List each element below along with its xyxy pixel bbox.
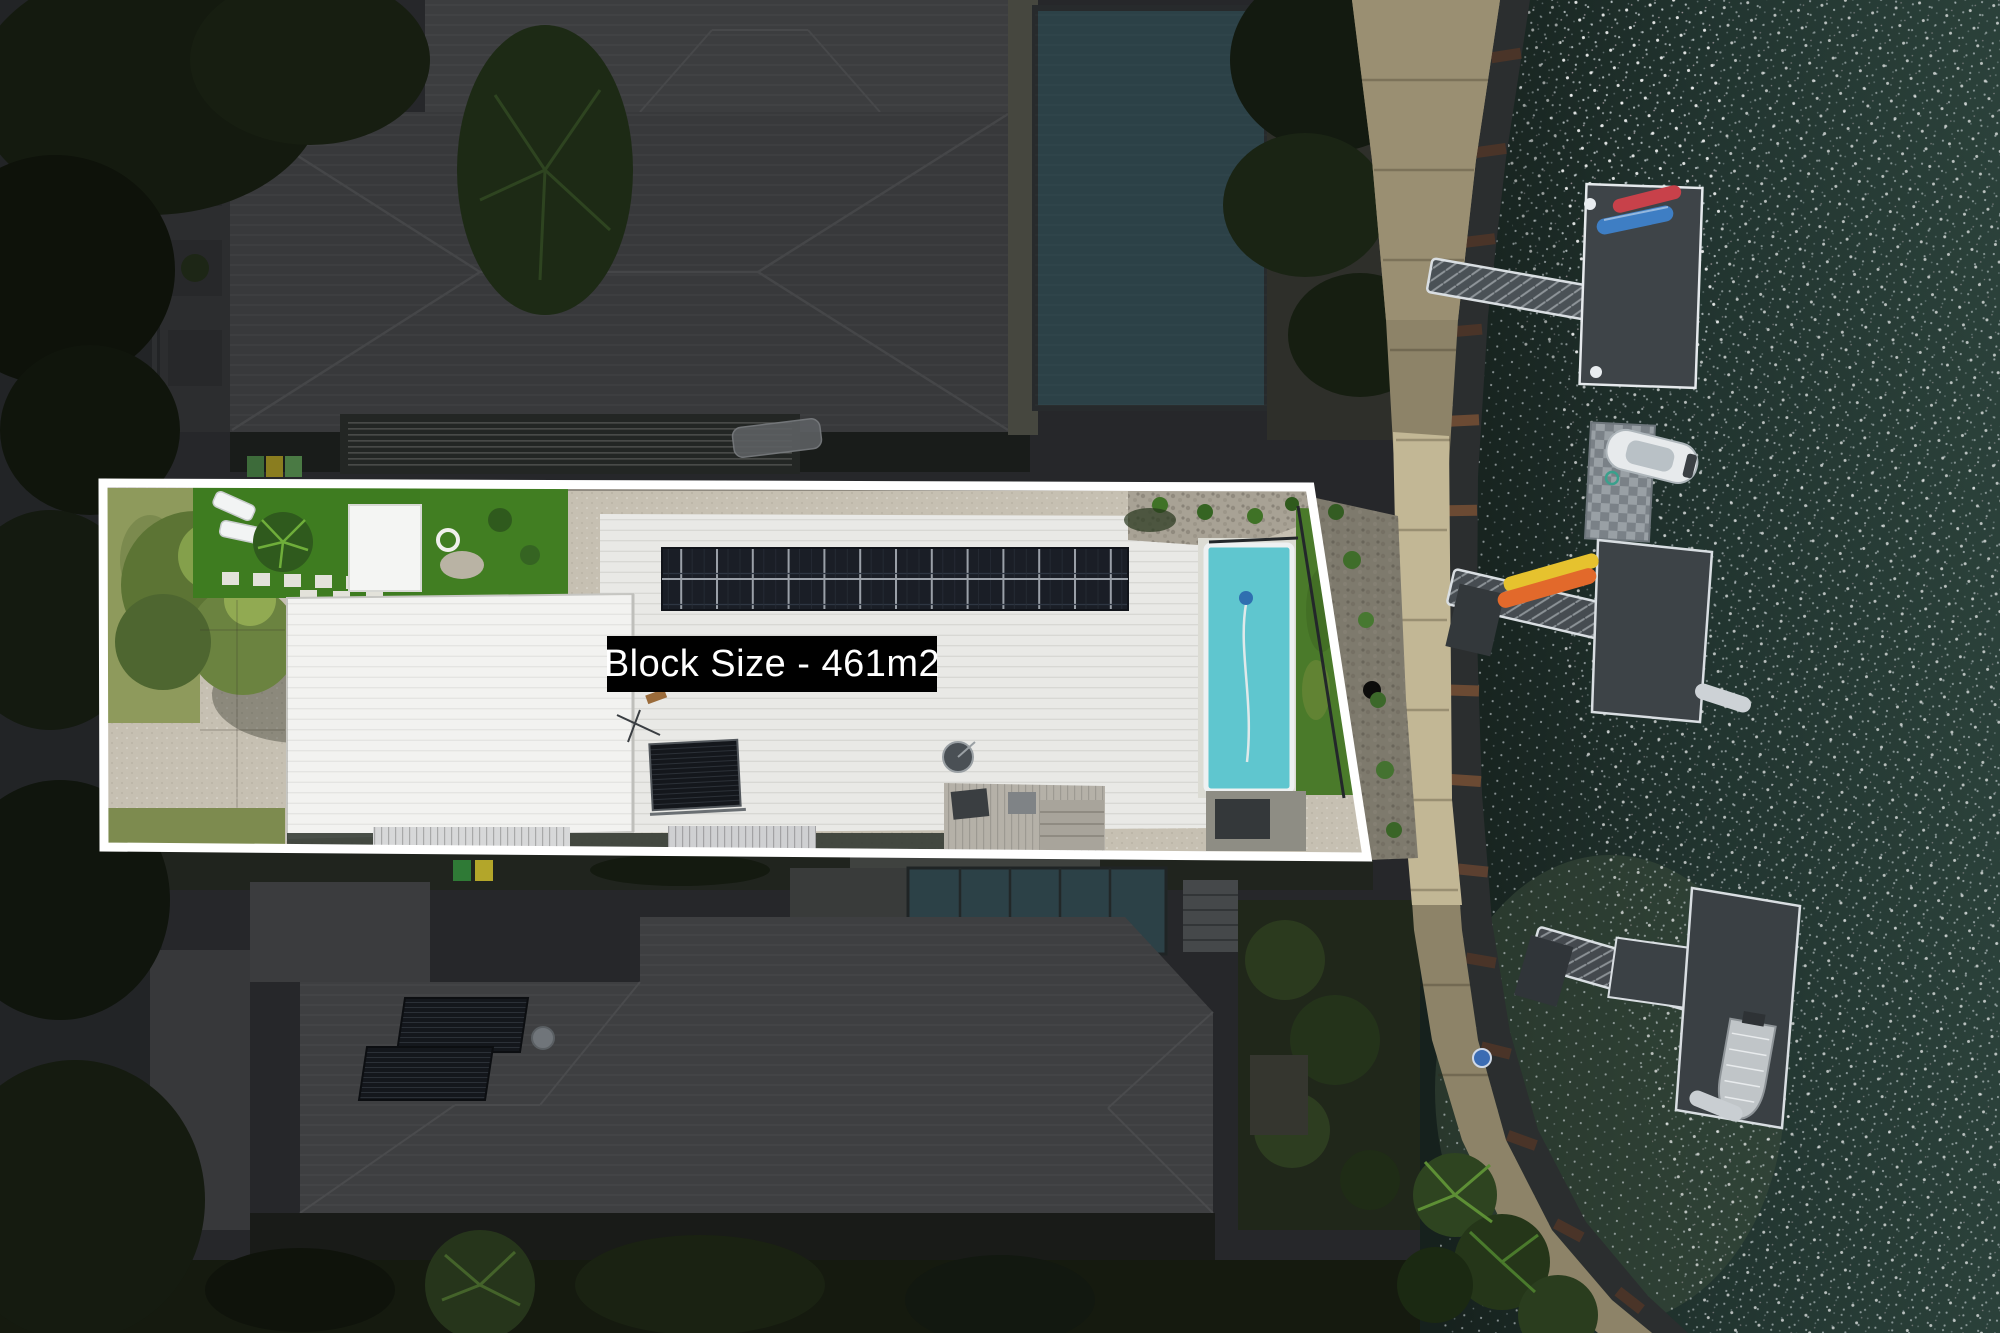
rear-deck [944, 783, 1105, 852]
satellite-dish-neighbor [532, 1027, 554, 1049]
block-size-text: Block Size - 461m2 [604, 643, 940, 686]
solar-water-heater [646, 739, 746, 814]
garden-palm [253, 512, 313, 572]
house-roof-garage [287, 594, 633, 840]
shore-garden-bottom [1238, 900, 1428, 1230]
rear-lawn-strip [105, 808, 285, 846]
stairs-to-walkway [1183, 880, 1238, 952]
pool-cleaner [1239, 591, 1253, 605]
walkway-sign [1473, 1049, 1491, 1067]
pergola [349, 505, 421, 591]
block-size-label: Block Size - 461m2 [607, 636, 937, 692]
aerial-photo: Block Size - 461m2 [0, 0, 2000, 1333]
